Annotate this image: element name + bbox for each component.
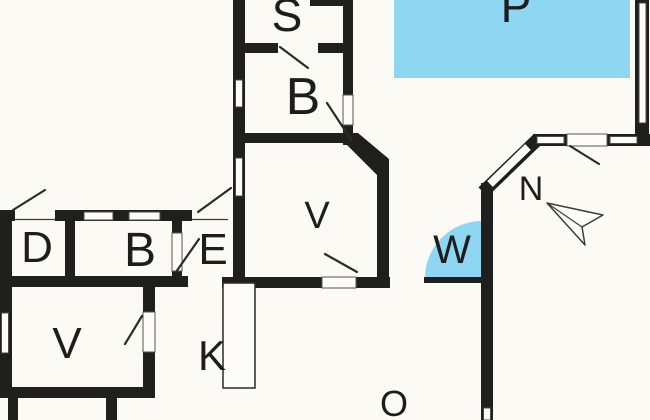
wall [0, 210, 12, 398]
wall [377, 159, 389, 288]
room-label-o: O [380, 386, 408, 420]
door-opening [343, 95, 353, 125]
window [2, 313, 9, 353]
floor-plan: S B P V N W D B E V K O [0, 0, 650, 420]
window [236, 158, 243, 196]
wall [0, 276, 188, 287]
window [484, 408, 491, 420]
room-label-pool: P [501, 0, 532, 29]
wall [245, 43, 278, 53]
room-label-v-lower: V [52, 322, 81, 366]
door-swing [325, 254, 357, 272]
wall [106, 398, 117, 420]
door-swing [280, 47, 308, 68]
room-label-b-left: B [124, 227, 156, 275]
door-opening [143, 312, 155, 352]
wall [8, 398, 18, 420]
wall [0, 387, 155, 398]
wall [343, 0, 353, 95]
door-swing [570, 146, 599, 164]
window [129, 212, 160, 220]
wall [172, 221, 182, 233]
room-label-d: D [21, 226, 53, 270]
wall [243, 133, 345, 143]
room-label-v-main: V [304, 197, 329, 235]
room-label-north: N [519, 172, 544, 206]
room-label-b-top: B [286, 71, 321, 123]
door-opening [567, 134, 607, 146]
window [84, 212, 113, 220]
kitchen-counter [223, 283, 255, 388]
walls-central [222, 0, 390, 288]
door-swing [125, 316, 142, 344]
wall [233, 0, 245, 288]
wall [481, 183, 493, 420]
door-swing [198, 188, 231, 212]
window [537, 137, 564, 144]
room-label-e: E [198, 228, 227, 272]
wall [55, 210, 192, 221]
north-arrow-icon [547, 203, 603, 245]
room-label-k: K [198, 335, 226, 377]
wall [143, 287, 155, 312]
door-opening [322, 277, 356, 288]
room-label-whirlpool: W [433, 230, 471, 270]
window [610, 137, 637, 144]
whirlpool-base-wall [424, 277, 482, 283]
window [639, 3, 646, 123]
wall [65, 221, 75, 277]
room-label-s: S [272, 0, 303, 38]
door-swing [13, 190, 45, 210]
window [236, 80, 243, 107]
